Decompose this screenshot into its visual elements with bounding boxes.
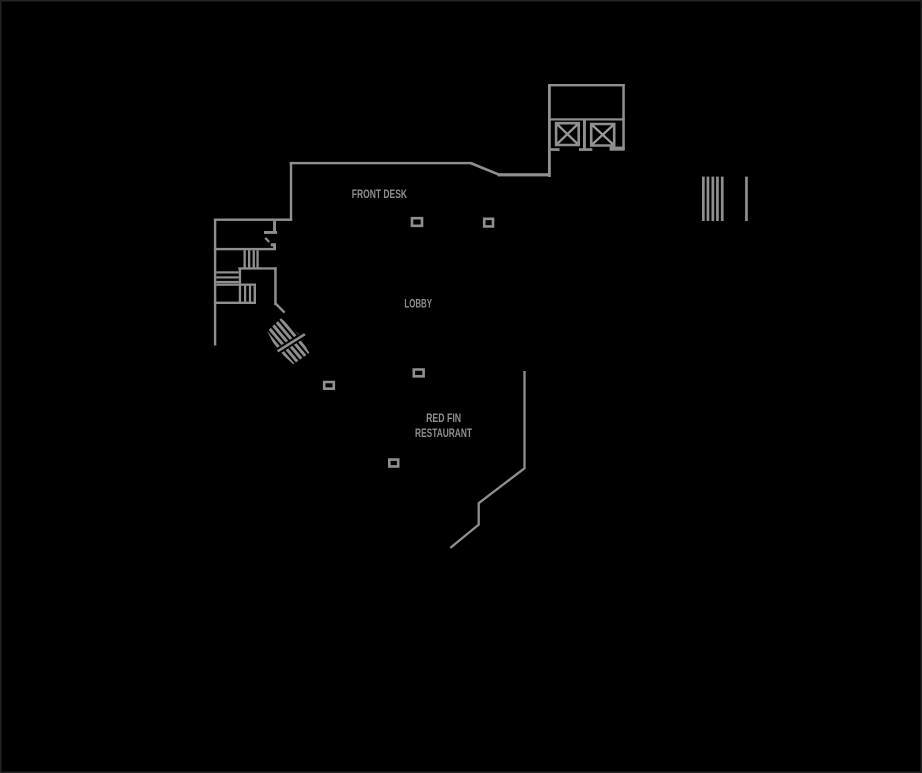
- svg-text:RED FIN: RED FIN: [426, 412, 461, 426]
- svg-text:RESTAURANT: RESTAURANT: [415, 428, 472, 441]
- svg-text:FRONT DESK: FRONT DESK: [352, 189, 408, 202]
- svg-text:LOBBY: LOBBY: [404, 298, 432, 311]
